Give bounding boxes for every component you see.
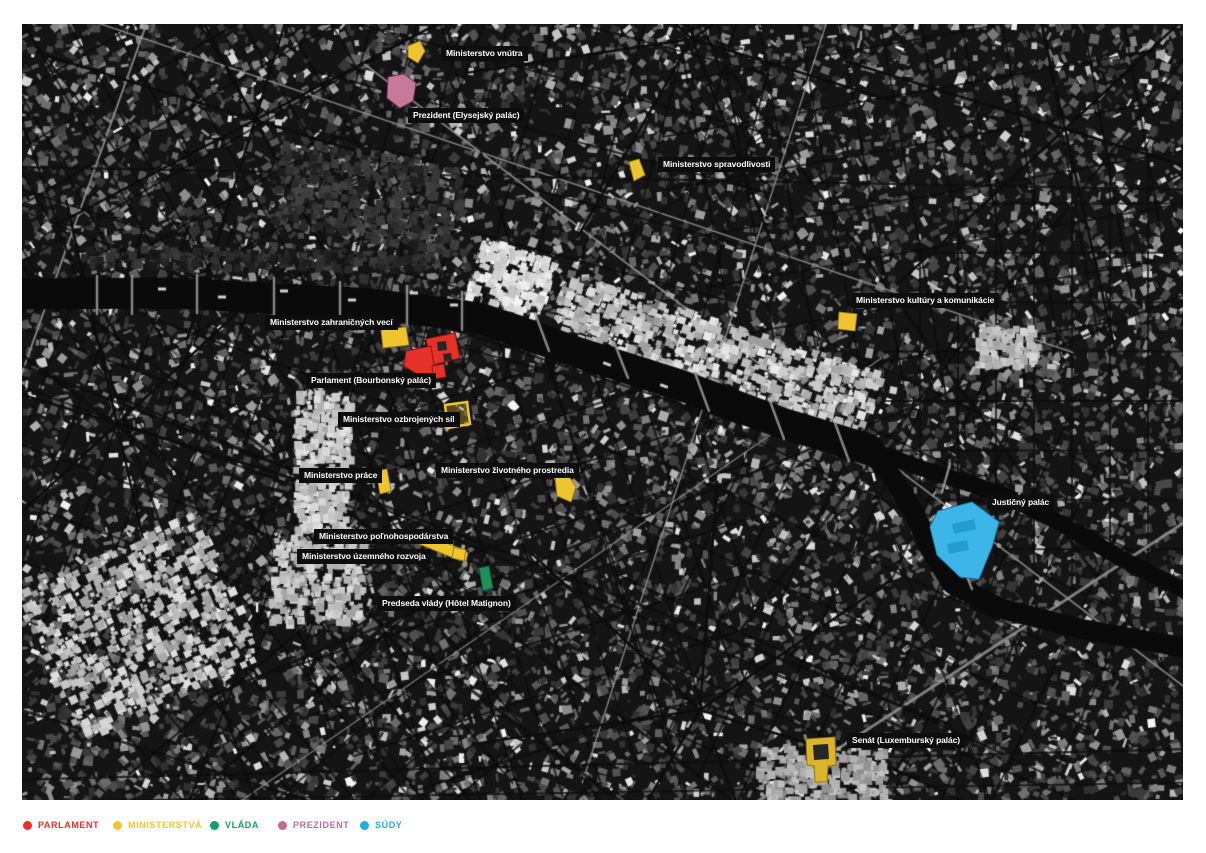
map-label-zivotne-prostredie: Ministerstvo životného prostredia — [436, 463, 579, 478]
legend: PARLAMENT MINISTERSTVÁ VLÁDA PREZIDENT S… — [0, 814, 1206, 844]
legend-item-prezident: PREZIDENT — [278, 820, 349, 830]
map-label-vnutra: Ministerstvo vnútra — [441, 46, 528, 61]
sudy-dot-icon — [360, 821, 369, 830]
map-label-prezident: Prezident (Elysejský palác) — [408, 108, 524, 123]
legend-label: VLÁDA — [225, 820, 259, 830]
prezident-dot-icon — [278, 821, 287, 830]
legend-item-sudy: SÚDY — [360, 820, 402, 830]
legend-label: PREZIDENT — [293, 820, 349, 830]
infographic-page: Ministerstvo vnútra Prezident (Elysejský… — [0, 0, 1206, 853]
satellite-texture — [22, 24, 1183, 800]
legend-item-parlament: PARLAMENT — [23, 820, 99, 830]
map-label-ozbrojene-sily: Ministerstvo ozbrojených síl — [338, 412, 460, 427]
legend-item-ministerstva: MINISTERSTVÁ — [113, 820, 202, 830]
map-label-predseda-vlady: Predseda vlády (Hôtel Matignon) — [377, 596, 516, 611]
map-label-zahranicne-veci: Ministerstvo zahraničných vecí — [265, 315, 398, 330]
map-label-polnohospodarstvo: Ministerstvo poľnohospodárstva — [314, 529, 453, 544]
legend-label: PARLAMENT — [38, 820, 99, 830]
map-label-praca: Ministerstvo práce — [299, 468, 382, 483]
parlament-dot-icon — [23, 821, 32, 830]
satellite-map: Ministerstvo vnútra Prezident (Elysejský… — [22, 24, 1183, 800]
map-label-kultura: Ministerstvo kultúry a komunikácie — [851, 293, 999, 308]
map-label-uzemny-rozvoj: Ministerstvo územného rozvoja — [297, 549, 431, 564]
vlada-dot-icon — [210, 821, 219, 830]
map-label-senat: Senát (Luxemburský palác) — [847, 733, 965, 748]
map-label-spravodlivost: Ministerstvo spravodlivosti — [658, 157, 775, 172]
map-label-justicny-palac: Justičný palác — [987, 495, 1054, 510]
map-label-parlament: Parlament (Bourbonský palác) — [306, 373, 436, 388]
ministerstva-dot-icon — [113, 821, 122, 830]
legend-item-vlada: VLÁDA — [210, 820, 259, 830]
legend-label: SÚDY — [375, 820, 402, 830]
legend-label: MINISTERSTVÁ — [128, 820, 202, 830]
